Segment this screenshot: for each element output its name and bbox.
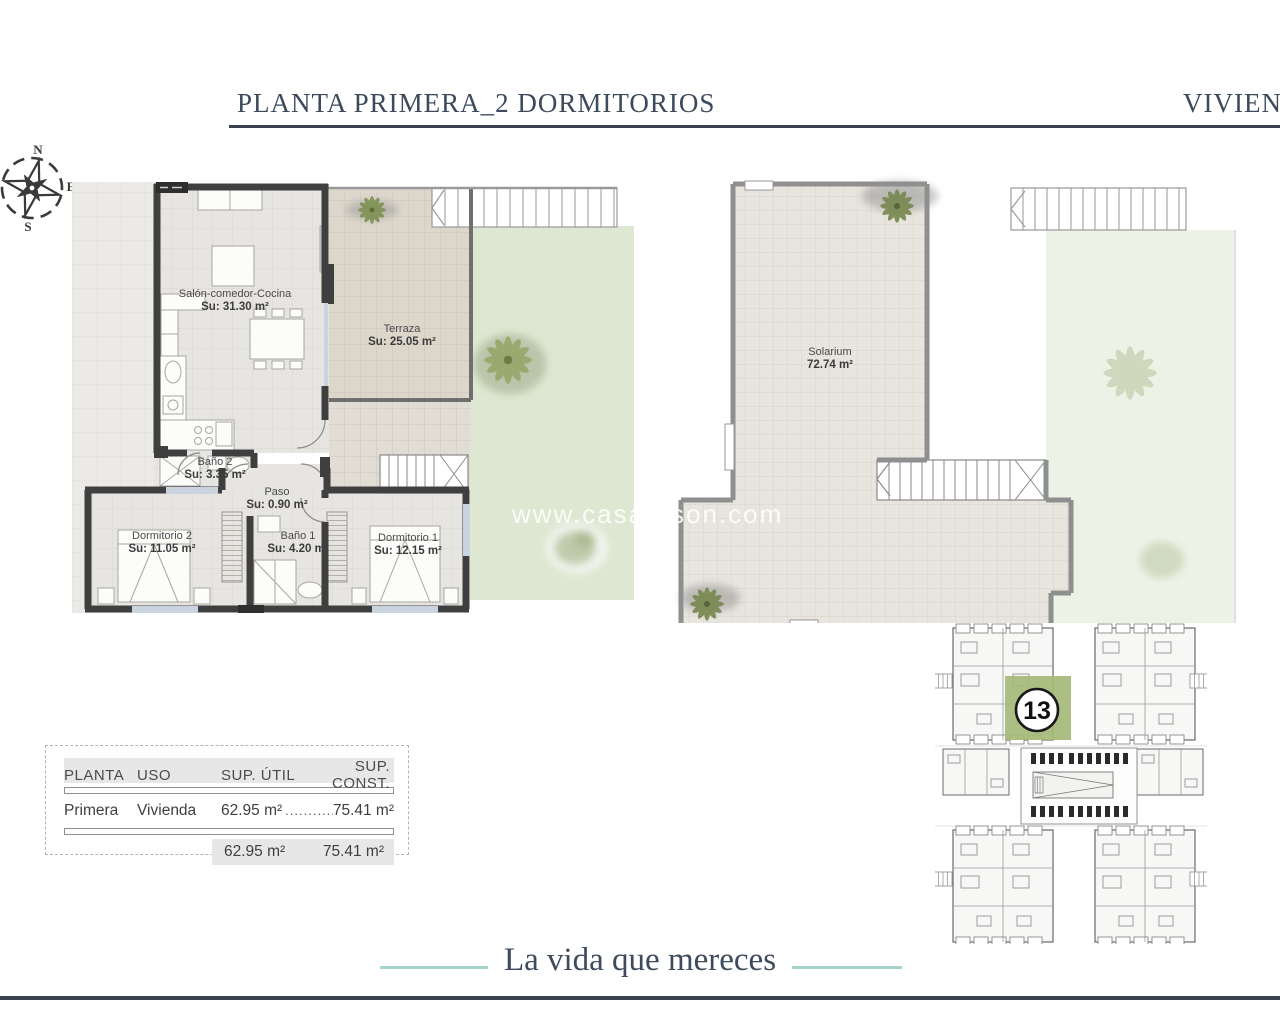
solarium-plan-drawing xyxy=(675,168,1245,623)
footer-rule xyxy=(0,996,1280,1000)
building-unit xyxy=(943,749,1009,795)
cell-uso: Vivienda xyxy=(137,802,221,820)
first-floor-plan: Salón-comedor-Cocina Su: 31.30 m² Terraz… xyxy=(72,168,642,623)
room-label-dormitorio2: Dormitorio 2 Su: 11.05 m² xyxy=(128,530,195,556)
unit-number: 13 xyxy=(1023,697,1051,725)
total-sup-util: 62.95 m² xyxy=(224,843,285,861)
col-uso: USO xyxy=(137,767,221,784)
walkway xyxy=(1190,674,1207,688)
col-sup-const: SUP. CONST. xyxy=(329,758,394,792)
page-title: PLANTA PRIMERA_2 DORMITORIOS xyxy=(237,88,715,119)
area-table-header: PLANTA USO SUP. ÚTIL SUP. CONST. xyxy=(64,758,394,783)
unit-tag xyxy=(238,605,264,613)
table-divider xyxy=(64,828,394,835)
stairs-top xyxy=(1011,188,1186,230)
room-label-dormitorio1: Dormitorio 1 Su: 12.15 m² xyxy=(374,532,442,558)
leader-dots: .............. xyxy=(282,803,333,818)
building-block xyxy=(1095,624,1195,744)
col-planta: PLANTA xyxy=(64,767,137,784)
building-block xyxy=(953,826,1053,944)
building-unit xyxy=(1137,749,1203,795)
building-block xyxy=(1095,826,1195,944)
room-label-solarium: Solarium 72.74 m² xyxy=(807,346,853,372)
room-label-bano1: Baño 1 Su: 4.20 m² xyxy=(267,530,328,556)
table-row: Primera Vivienda 62.95 m² ..............… xyxy=(64,798,394,824)
walkway xyxy=(1190,872,1207,886)
total-sup-const: 75.41 m² xyxy=(323,843,384,861)
stairs-middle xyxy=(877,460,1046,500)
area-table: PLANTA USO SUP. ÚTIL SUP. CONST. Primera… xyxy=(45,745,409,855)
solarium-plan: Solarium 72.74 m² xyxy=(675,168,1245,623)
header-rule xyxy=(229,125,1280,128)
watermark-right: son.com xyxy=(671,499,783,530)
cell-sup-const: 75.41 m² xyxy=(333,802,394,820)
stairs-top xyxy=(432,188,617,227)
compass-n: N xyxy=(33,142,43,157)
watermark-left: www.casas xyxy=(512,499,660,530)
pool-courtyard xyxy=(1021,748,1137,824)
compass-s: S xyxy=(24,219,31,232)
room-label-terraza: Terraza Su: 25.05 m² xyxy=(368,323,436,349)
unit-title: VIVIENDA xyxy=(1183,88,1280,119)
col-sup-util: SUP. ÚTIL xyxy=(221,767,329,784)
room-label-paso: Paso Su: 0.90 m² xyxy=(246,486,307,512)
cell-sup-util: 62.95 m² xyxy=(221,802,282,820)
walkway xyxy=(935,872,952,886)
room-label-bano2: Baño 2 Su: 3.35 m² xyxy=(184,456,245,482)
table-totals: 62.95 m² 75.41 m² xyxy=(64,839,394,865)
brochure-page: { "header": { "title_left": "PLANTA PRIM… xyxy=(0,0,1280,1024)
compass-rose-icon: N E S W xyxy=(0,140,78,232)
cell-planta: Primera xyxy=(64,802,137,820)
room-label-salon: Salón-comedor-Cocina Su: 31.30 m² xyxy=(179,288,292,314)
tagline: La vida que mereces xyxy=(0,942,1280,979)
bush-icon xyxy=(555,532,595,564)
key-plan: 13 xyxy=(935,622,1207,944)
walkway xyxy=(935,674,952,688)
